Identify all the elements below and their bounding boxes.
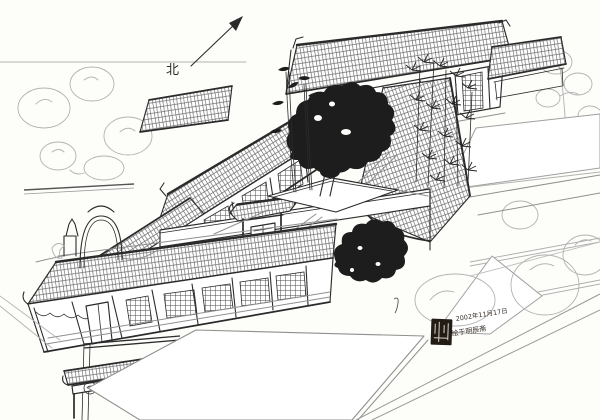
- north-arrow-line: [191, 23, 236, 66]
- north-arrow: 北: [166, 16, 243, 78]
- courtyard-sketch: 北 2002年11月17日 绘于明辰斋: [0, 0, 600, 420]
- artist-seal: [431, 319, 453, 346]
- south-window: [164, 290, 197, 318]
- south-window: [276, 272, 306, 300]
- north-arrow-head: [229, 16, 243, 31]
- north-window: [462, 72, 483, 111]
- south-window: [240, 278, 270, 306]
- compass-label: 北: [166, 63, 179, 78]
- stray-pen-mark: [394, 298, 398, 313]
- arch-pediment: [88, 206, 114, 212]
- gate-pier-finial: [64, 219, 78, 256]
- background-trees-left: [18, 67, 152, 194]
- southeast-bush: [334, 219, 408, 282]
- south-window: [202, 284, 233, 312]
- sketch-canvas: 北 2002年11月17日 绘于明辰斋: [0, 0, 600, 420]
